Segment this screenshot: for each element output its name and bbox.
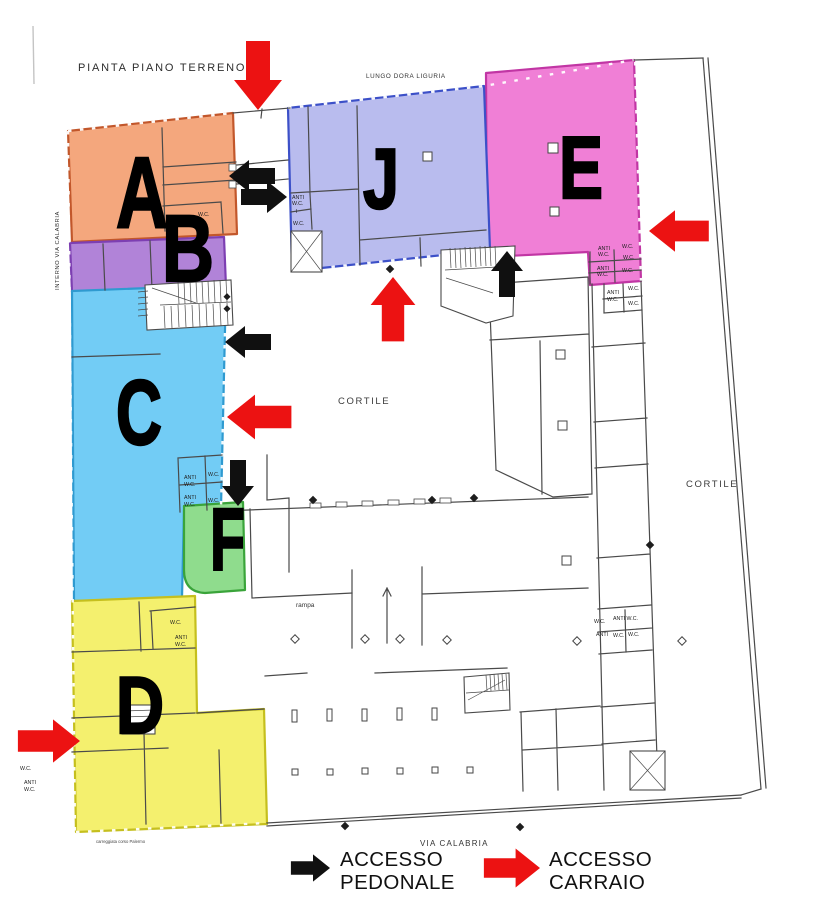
vehicle-access-arrow-zone-c <box>227 395 291 440</box>
room-label: W.C. <box>622 244 633 250</box>
zone-j-label: J <box>363 132 399 227</box>
stair-garage <box>464 673 510 713</box>
room-label: W.C. <box>628 632 639 638</box>
floor-plan-svg: ANTI W.C. ANTI W.C. I W.C. ANTI W.C. W.C… <box>0 0 830 900</box>
zone-f-label: F <box>210 490 245 589</box>
room-label: W.C. <box>628 301 639 307</box>
room-label: W.C. <box>24 787 35 793</box>
pedestrian-access-arrow-zone-c <box>225 326 271 358</box>
room-label: ANTI W.C. <box>613 616 638 622</box>
legend: ACCESSO PEDONALE ACCESSO CARRAIO <box>291 848 652 894</box>
room-label: W.C. <box>292 201 303 207</box>
zone-a-label: A <box>116 137 168 249</box>
street-note: carreggiata corso Palermo <box>96 839 146 844</box>
room-label: W.C. <box>184 502 195 508</box>
room-label: ANTI <box>184 475 196 481</box>
room-label: ANTI <box>184 495 196 501</box>
street-label-bottom: VIA CALABRIA <box>420 839 489 848</box>
legend-vehicle-line1: ACCESSO <box>549 848 652 871</box>
room-label: ANTI <box>607 290 619 296</box>
room-label: W.C. <box>293 221 304 227</box>
vehicle-access-arrow-zone-d <box>18 719 80 762</box>
room-label: W.C. <box>607 297 618 303</box>
courtyard-label-right: CORTILE <box>686 479 738 490</box>
vehicle-access-arrow-top <box>234 41 282 110</box>
floor-plan-image: ANTI W.C. ANTI W.C. I W.C. ANTI W.C. W.C… <box>0 0 830 900</box>
zone-d-label: D <box>116 661 164 751</box>
zone-e-label: E <box>559 118 603 217</box>
legend-pedestrian-line1: ACCESSO <box>340 848 443 871</box>
vehicle-access-arrow-zone-e <box>649 210 709 252</box>
room-label: W.C. <box>175 642 186 648</box>
room-label: W.C. <box>598 252 609 258</box>
room-label: W.C. <box>613 633 624 639</box>
room-label: ANTI <box>24 780 36 786</box>
legend-pedestrian-arrow-icon <box>291 854 330 881</box>
legend-vehicle-line2: CARRAIO <box>549 871 645 894</box>
room-label: ANTI <box>175 635 187 641</box>
zone-c-label: C <box>116 362 162 464</box>
room-label: W.C. <box>622 268 633 274</box>
room-label: W.C. <box>170 620 181 626</box>
legend-pedestrian-line2: PEDONALE <box>340 871 455 894</box>
vehicle-access-arrow-zone-j <box>371 277 416 341</box>
street-label-top: LUNGO DORA LIGURIA <box>366 73 446 80</box>
courtyard-label-center: CORTILE <box>338 396 390 407</box>
room-label: W.C. <box>184 482 195 488</box>
zone-b-label: B <box>162 196 214 302</box>
room-label: W.C. <box>594 619 605 625</box>
room-label: W.C. <box>623 255 634 261</box>
room-label: W.C. <box>597 272 608 278</box>
elevator-j <box>291 231 322 272</box>
scan-artifact <box>33 26 34 84</box>
room-label: ANTI <box>596 632 608 638</box>
room-label: W.C. <box>20 766 31 772</box>
elevator-bottom-right <box>630 751 665 790</box>
street-label-left: INTERNO VIA CALABRIA <box>55 211 61 290</box>
room-label: W.C. <box>208 472 219 478</box>
ramp-label: rampa <box>296 602 315 609</box>
room-label: I <box>296 209 297 215</box>
room-label: W.C. <box>628 286 639 292</box>
page-title: PIANTA PIANO TERRENO <box>78 62 246 74</box>
legend-vehicle-arrow-icon <box>484 848 540 887</box>
